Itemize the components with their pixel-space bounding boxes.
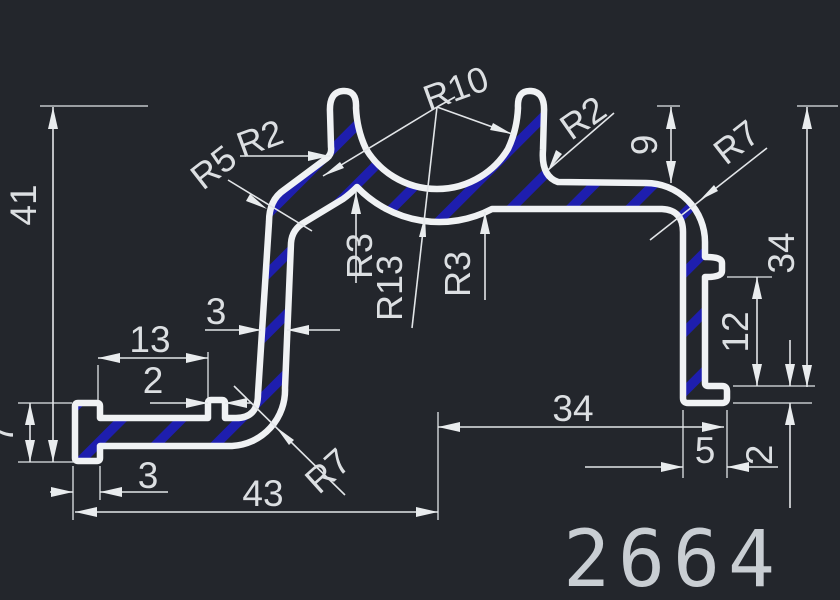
dim-right-height: 34 (761, 106, 838, 387)
dim-notch-to-foot-label: 12 (715, 311, 756, 352)
dim-notch-width: 2 (143, 360, 252, 408)
dim-channel-top-depth: 9 (624, 106, 680, 183)
part-number: 2664 (563, 515, 783, 600)
radius-channel-left-fillet: R3 (339, 192, 380, 283)
dim-notch-to-foot: 12 (715, 277, 772, 386)
radius-channel-left-fillet-label: R3 (339, 233, 380, 279)
radius-top-left-corner-label: R5 (183, 137, 245, 198)
radius-right-prong-fillet-label: R2 (552, 88, 613, 148)
dim-arm-to-notch-label: 13 (129, 319, 170, 360)
dim-overall-width-label: 43 (242, 473, 283, 514)
dim-right-height-label: 34 (761, 232, 802, 273)
dim-right-foot-width-label: 5 (695, 430, 716, 471)
dim-right-foot-width: 5 (585, 410, 778, 478)
dim-notch-width-label: 2 (143, 360, 164, 401)
dim-left-foot-width: 3 (50, 455, 168, 520)
cad-drawing-canvas: 41 7 3 43 13 2 (0, 0, 840, 600)
radius-bottom-left-corner-label: R7 (297, 440, 359, 501)
dim-right-foot-thickness-label: 2 (739, 445, 780, 466)
radius-channel-inner-label: R10 (418, 58, 494, 119)
radius-channel-right-fillet-label: R3 (437, 251, 478, 297)
dim-left-foot-height-label: 7 (0, 423, 21, 444)
dim-left-foot-width-label: 3 (138, 455, 159, 496)
dim-overall-height-label: 41 (3, 184, 44, 225)
dim-right-span-label: 34 (552, 388, 593, 429)
dim-wall-thickness-label: 3 (206, 291, 227, 332)
dim-left-foot-height: 7 (0, 403, 72, 462)
dim-channel-top-depth-label: 9 (624, 135, 665, 156)
radius-top-right-corner: R7 (650, 112, 767, 240)
profile-drawing: 41 7 3 43 13 2 (0, 0, 840, 600)
radius-left-prong-fillet-label: R2 (231, 111, 288, 165)
radius-right-prong-fillet: R2 (548, 88, 614, 171)
radius-left-prong-fillet: R2 (231, 111, 330, 165)
radius-top-right-corner-label: R7 (706, 112, 768, 173)
